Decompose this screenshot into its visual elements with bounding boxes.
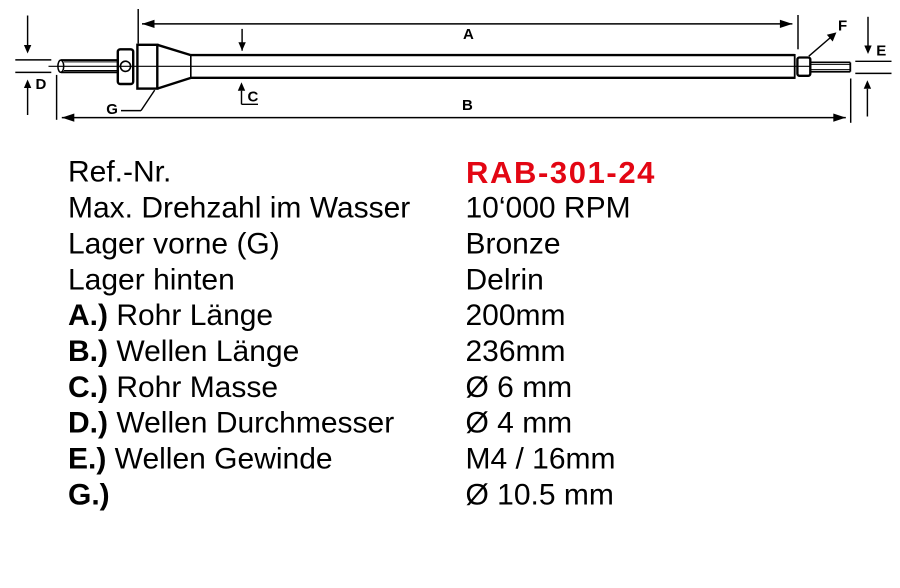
svg-text:Lager hinten: Lager hinten — [68, 263, 235, 296]
svg-text:F: F — [838, 17, 847, 34]
svg-text:G.): G.) — [68, 478, 110, 511]
svg-text:236mm: 236mm — [466, 335, 566, 368]
svg-text:G: G — [106, 101, 118, 118]
svg-text:A.) Rohr Länge: A.) Rohr Länge — [68, 299, 273, 332]
svg-text:C: C — [248, 89, 259, 106]
svg-text:Ø 10.5 mm: Ø 10.5 mm — [466, 478, 614, 511]
svg-text:D.) Wellen Durchmesser: D.) Wellen Durchmesser — [68, 407, 394, 440]
svg-text:Delrin: Delrin — [466, 263, 544, 296]
svg-text:E.) Wellen Gewinde: E.) Wellen Gewinde — [68, 443, 333, 476]
svg-text:Ø 4 mm: Ø 4 mm — [466, 407, 573, 440]
svg-text:A: A — [463, 26, 474, 43]
svg-text:Bronze: Bronze — [466, 227, 561, 260]
svg-text:Ø 6 mm: Ø 6 mm — [466, 371, 573, 404]
svg-text:C.) Rohr Masse: C.) Rohr Masse — [68, 371, 278, 404]
svg-text:Ref.-Nr.: Ref.-Nr. — [68, 156, 171, 189]
svg-text:200mm: 200mm — [466, 299, 566, 332]
svg-text:B: B — [462, 97, 473, 114]
svg-text:E: E — [876, 43, 886, 60]
svg-text:B.) Wellen Länge: B.) Wellen Länge — [68, 335, 299, 368]
svg-text:Max. Drehzahl im Wasser: Max. Drehzahl im Wasser — [68, 192, 410, 225]
svg-text:10‘000 RPM: 10‘000 RPM — [466, 192, 631, 225]
svg-text:Lager vorne (G): Lager vorne (G) — [68, 227, 280, 260]
svg-text:D: D — [36, 76, 47, 93]
svg-text:RAB-301-24: RAB-301-24 — [466, 155, 656, 190]
svg-text:M4 / 16mm: M4 / 16mm — [466, 443, 616, 476]
